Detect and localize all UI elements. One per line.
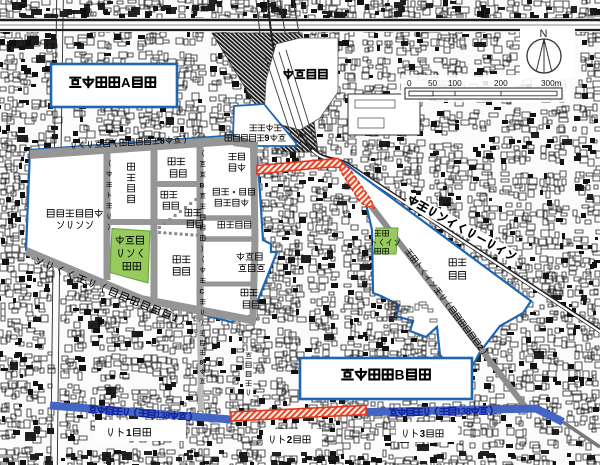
svg-text:8: 8	[160, 136, 166, 146]
svg-text:1: 1	[126, 428, 132, 439]
svg-text:8: 8	[200, 359, 204, 366]
svg-text:A: A	[121, 75, 131, 90]
svg-text:200: 200	[494, 79, 508, 88]
svg-text:2: 2	[287, 435, 292, 446]
svg-text:300m: 300m	[541, 79, 562, 88]
svg-text:50: 50	[428, 79, 438, 88]
svg-text:9: 9	[265, 133, 270, 143]
svg-text:100: 100	[448, 79, 462, 88]
svg-text:N: N	[540, 28, 548, 40]
svg-text:0: 0	[407, 79, 412, 88]
svg-text:8: 8	[466, 406, 472, 417]
svg-text:3: 3	[420, 429, 426, 440]
svg-text:B: B	[395, 367, 405, 382]
svg-text:B: B	[200, 182, 205, 189]
svg-text:C: C	[200, 288, 205, 295]
